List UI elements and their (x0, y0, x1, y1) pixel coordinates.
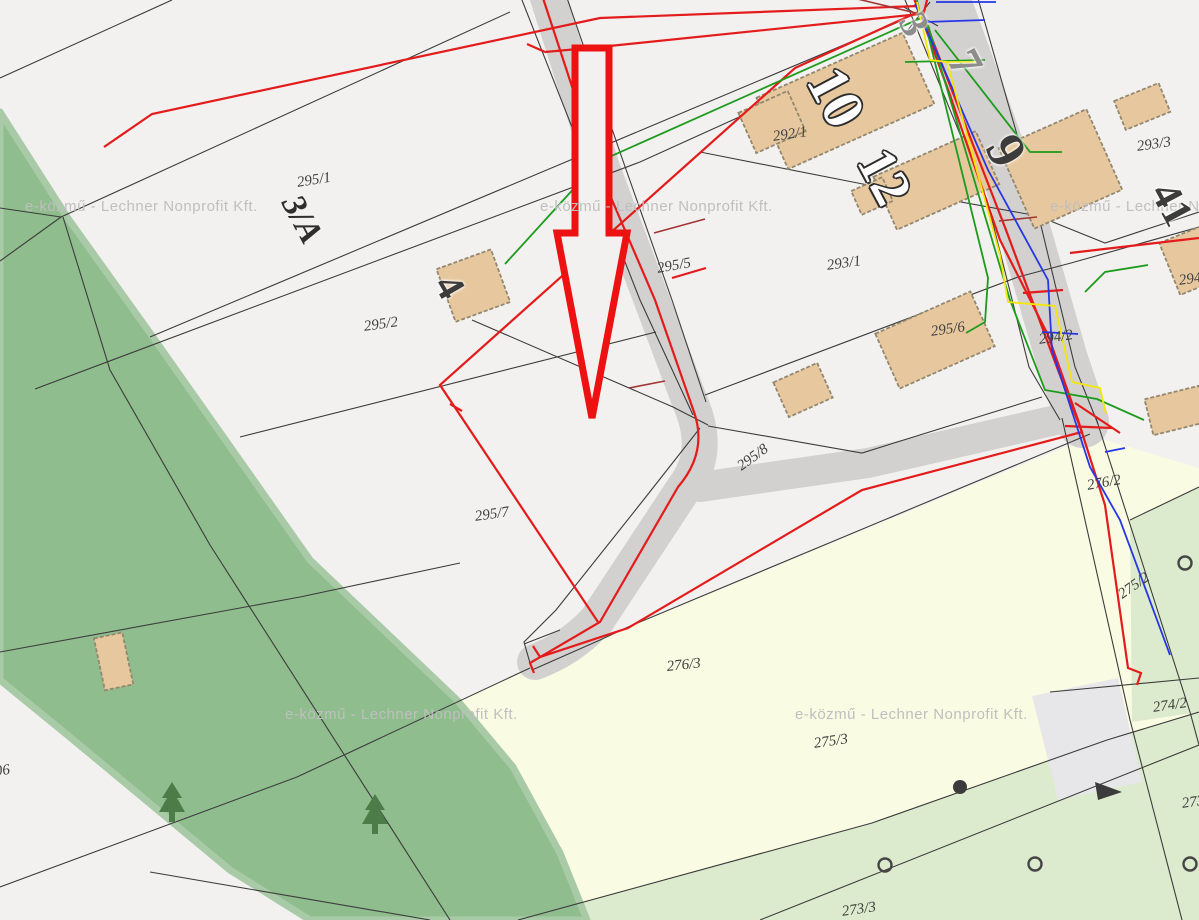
dot-marker (953, 780, 967, 794)
watermark-text: e-közmű - Lechner Nonprofit Kft. (285, 706, 518, 723)
map-viewport[interactable]: e-közmű - Lechner Nonprofit Kft.e-közmű … (0, 0, 1199, 920)
watermark-text: e-közmű - Lechner Nonprofit Kft. (540, 198, 773, 215)
parcel-label: 273/ (1181, 793, 1199, 812)
watermark-text: e-közmű - Lechner Nonprofit Kft. (25, 198, 258, 215)
watermark-text: e-közmű - Lechner Nonprofit Kft. (795, 706, 1028, 723)
parcel-label: 294/ (1178, 270, 1199, 289)
parcel-label: 06 (0, 763, 11, 780)
